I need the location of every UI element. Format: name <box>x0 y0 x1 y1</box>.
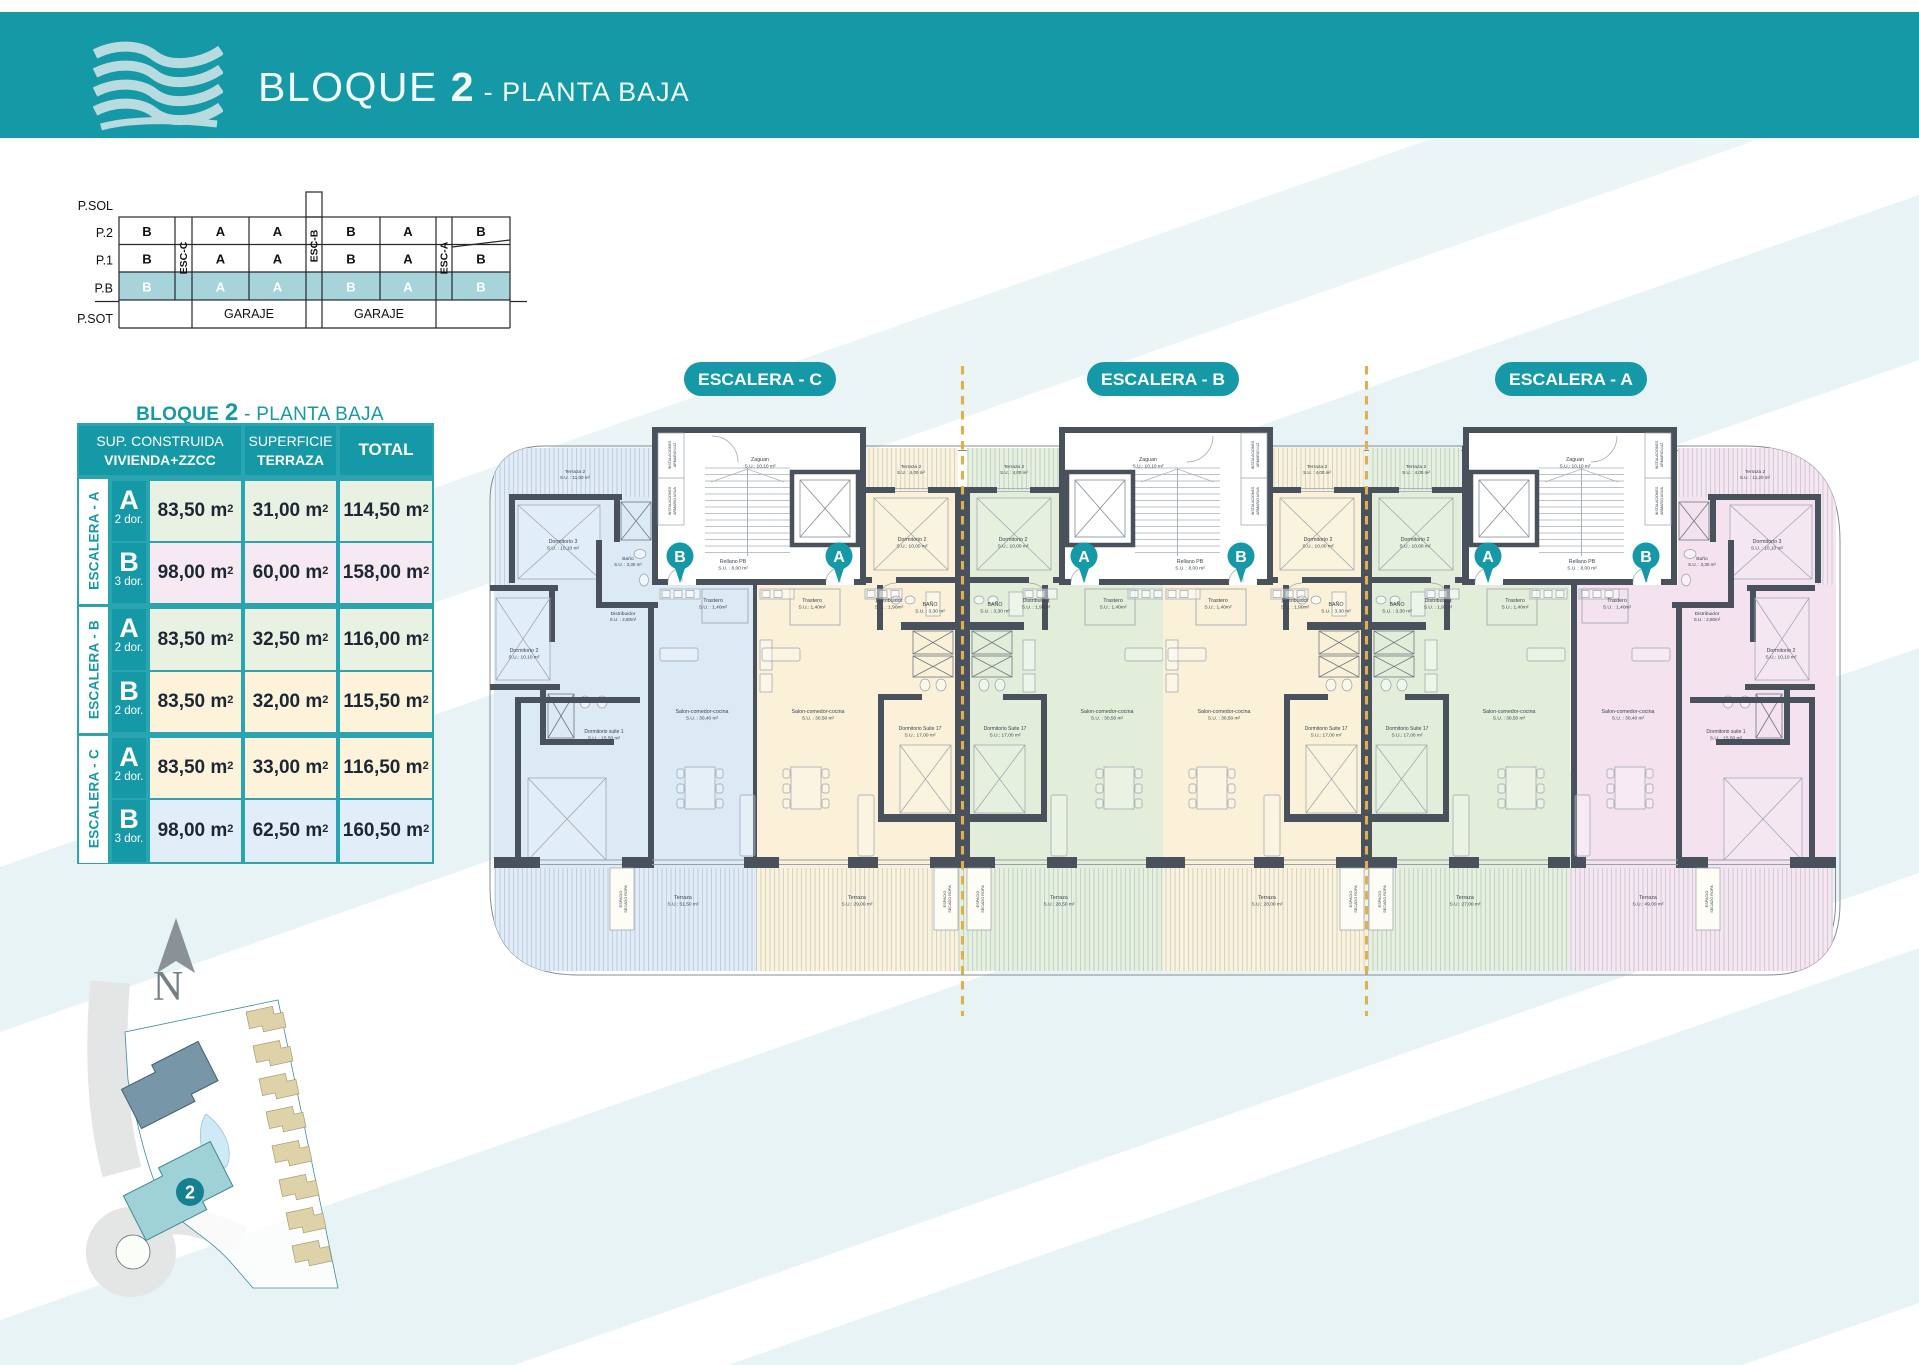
svg-text:ESC-B: ESC-B <box>309 229 321 262</box>
svg-text:B: B <box>142 224 151 239</box>
svg-text:B: B <box>476 280 485 295</box>
svg-text:N: N <box>153 964 183 1010</box>
svg-text:INSTALACIONES: INSTALACIONES <box>1655 440 1659 469</box>
svg-text:ARMARIO AGUA: ARMARIO AGUA <box>1660 487 1664 515</box>
svg-text:B: B <box>142 280 151 295</box>
svg-text:ARMARIO AGUA: ARMARIO AGUA <box>673 487 677 515</box>
svg-text:SECADO ROPA: SECADO ROPA <box>948 885 952 913</box>
svg-text:B: B <box>476 224 485 239</box>
svg-text:Terraza 2S.U. : 4,00 m²: Terraza 2S.U. : 4,00 m² <box>897 464 925 475</box>
svg-text:ESPACIO: ESPACIO <box>619 891 623 908</box>
svg-text:ARMARIO AGUA: ARMARIO AGUA <box>1256 487 1260 515</box>
svg-text:INSTALACIONES: INSTALACIONES <box>668 486 672 515</box>
svg-text:A: A <box>1482 549 1494 566</box>
svg-text:ESCALERA - A: ESCALERA - A <box>1509 371 1633 389</box>
svg-text:A: A <box>403 252 413 267</box>
svg-text:ESPACIO: ESPACIO <box>976 891 980 908</box>
svg-text:INSTALACIONES: INSTALACIONES <box>1251 486 1255 515</box>
svg-text:SECADO ROPA: SECADO ROPA <box>981 885 985 913</box>
svg-text:A: A <box>273 224 283 239</box>
svg-text:B: B <box>1640 549 1652 566</box>
svg-text:ESPACIO: ESPACIO <box>1378 891 1382 908</box>
svg-text:ESPACIO: ESPACIO <box>943 891 947 908</box>
svg-text:INSTALACIONES: INSTALACIONES <box>1251 440 1255 469</box>
svg-text:DistribuidorS.U. : 2,80m²: DistribuidorS.U. : 2,80m² <box>610 611 637 622</box>
svg-text:ESCALERA - C: ESCALERA - C <box>698 371 822 389</box>
svg-text:B: B <box>346 280 355 295</box>
svg-text:P.1: P.1 <box>96 254 113 268</box>
svg-text:ESCALERA - B: ESCALERA - B <box>1101 371 1225 389</box>
svg-text:ESC-C: ESC-C <box>178 241 190 274</box>
svg-text:B: B <box>1235 549 1247 566</box>
svg-text:P.SOL: P.SOL <box>78 199 113 213</box>
svg-text:A: A <box>216 280 226 295</box>
svg-text:INSTALACIONES: INSTALACIONES <box>1655 486 1659 515</box>
svg-text:A: A <box>273 280 283 295</box>
svg-text:Terraza 2S.U. : 4,00 m²: Terraza 2S.U. : 4,00 m² <box>1303 464 1331 475</box>
svg-text:SECADO ROPA: SECADO ROPA <box>624 885 628 913</box>
svg-text:ARMARIO LUZ: ARMARIO LUZ <box>1660 442 1664 467</box>
svg-text:GARAJE: GARAJE <box>354 307 404 321</box>
svg-text:A: A <box>403 224 413 239</box>
svg-text:2: 2 <box>185 1183 195 1203</box>
svg-text:B: B <box>476 252 485 267</box>
svg-text:SECADO ROPA: SECADO ROPA <box>1383 885 1387 913</box>
svg-text:P.B: P.B <box>94 282 113 296</box>
svg-text:A: A <box>403 280 413 295</box>
svg-text:ESPACIO: ESPACIO <box>1705 891 1709 908</box>
svg-text:B: B <box>142 252 151 267</box>
svg-text:INSTALACIONES: INSTALACIONES <box>668 440 672 469</box>
svg-text:SECADO ROPA: SECADO ROPA <box>1710 885 1714 913</box>
svg-text:B: B <box>346 224 355 239</box>
svg-text:B: B <box>346 252 355 267</box>
svg-text:Terraza 2S.U. : 4,00 m²: Terraza 2S.U. : 4,00 m² <box>1000 464 1028 475</box>
svg-text:P.SOT: P.SOT <box>77 312 113 326</box>
svg-text:A: A <box>273 252 283 267</box>
svg-text:Terraza 2S.U. : 4,00 m²: Terraza 2S.U. : 4,00 m² <box>1402 464 1430 475</box>
svg-text:B: B <box>674 549 686 566</box>
svg-text:A: A <box>216 252 226 267</box>
svg-text:SECADO ROPA: SECADO ROPA <box>1354 885 1358 913</box>
svg-text:ESPACIO: ESPACIO <box>1349 891 1353 908</box>
svg-text:DistribuidorS.U. : 2,80m²: DistribuidorS.U. : 2,80m² <box>1694 611 1721 622</box>
svg-text:A: A <box>1078 549 1090 566</box>
svg-text:A: A <box>216 224 226 239</box>
svg-text:ARMARIO LUZ: ARMARIO LUZ <box>1256 442 1260 467</box>
svg-text:ARMARIO LUZ: ARMARIO LUZ <box>673 442 677 467</box>
svg-text:A: A <box>833 549 845 566</box>
svg-text:P.2: P.2 <box>96 226 113 240</box>
svg-text:ESC-A: ESC-A <box>439 241 451 274</box>
svg-text:GARAJE: GARAJE <box>224 307 274 321</box>
